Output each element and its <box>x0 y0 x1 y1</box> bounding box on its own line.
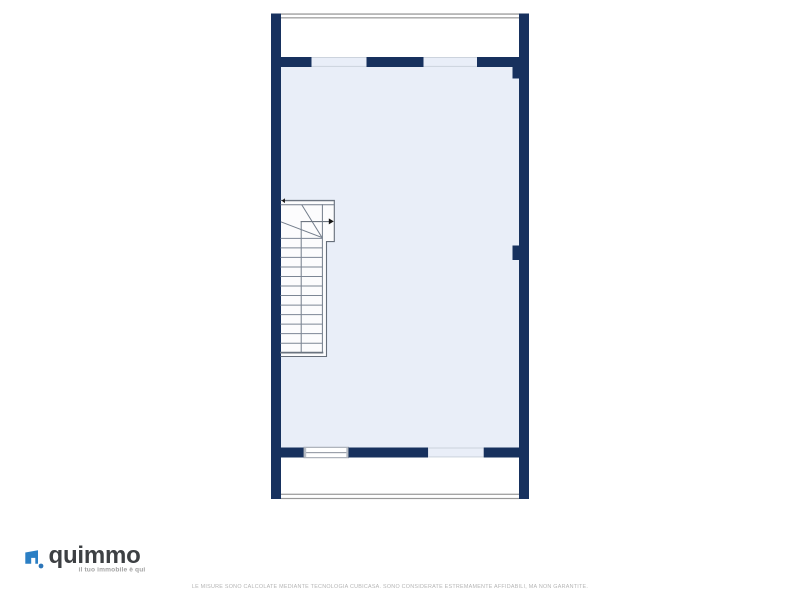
svg-text:quimmo: quimmo <box>49 542 141 569</box>
svg-text:il tuo immobile è qui: il tuo immobile è qui <box>79 566 146 573</box>
svg-text:LE MISURE SONO CALCOLATE MEDIA: LE MISURE SONO CALCOLATE MEDIANTE TECNOL… <box>192 584 588 590</box>
